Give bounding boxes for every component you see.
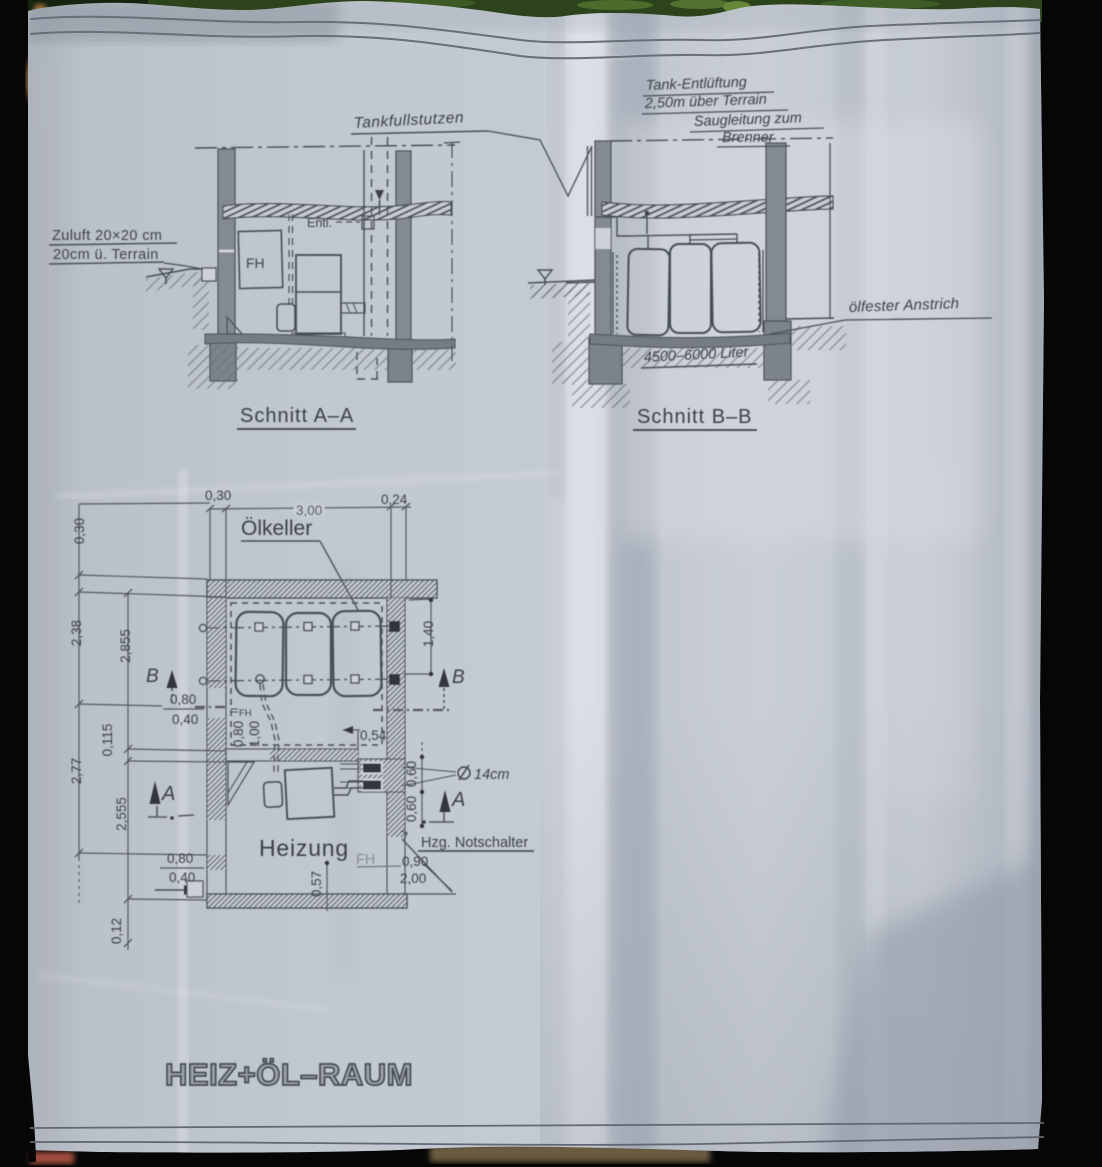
svg-text:Entl.: Entl. xyxy=(307,216,332,230)
svg-text:0,80: 0,80 xyxy=(167,851,193,866)
svg-text:Hzg. Notschalter: Hzg. Notschalter xyxy=(421,835,528,851)
svg-text:FH: FH xyxy=(239,708,252,719)
svg-text:0,54: 0,54 xyxy=(360,728,387,743)
svg-text:Ölkeller: Ölkeller xyxy=(241,517,312,540)
svg-text:FH: FH xyxy=(356,852,375,868)
svg-text:0,115: 0,115 xyxy=(100,724,115,757)
svg-text:Zuluft 20×20 cm: Zuluft 20×20 cm xyxy=(52,228,162,244)
svg-text:2,855: 2,855 xyxy=(118,629,133,663)
svg-text:Heizung: Heizung xyxy=(259,835,349,861)
svg-text:2,77: 2,77 xyxy=(69,758,84,784)
svg-text:2,555: 2,555 xyxy=(114,797,129,831)
svg-text:0,80: 0,80 xyxy=(231,721,246,747)
svg-text:1,00: 1,00 xyxy=(247,721,262,747)
svg-text:A: A xyxy=(161,783,175,805)
svg-text:0,24: 0,24 xyxy=(381,492,408,507)
svg-text:3,00: 3,00 xyxy=(296,503,322,518)
svg-text:FH: FH xyxy=(246,255,265,271)
svg-text:Brenner: Brenner xyxy=(722,130,775,146)
svg-text:B: B xyxy=(146,666,159,687)
svg-text:2,00: 2,00 xyxy=(400,871,426,886)
svg-text:0,57: 0,57 xyxy=(309,871,324,897)
svg-text:0,80: 0,80 xyxy=(170,692,196,707)
svg-text:Schnitt B–B: Schnitt B–B xyxy=(637,406,753,428)
svg-text:0,40: 0,40 xyxy=(172,712,198,727)
svg-text:B: B xyxy=(452,667,465,688)
svg-text:Schnitt A–A: Schnitt A–A xyxy=(240,405,354,427)
svg-text:0,30: 0,30 xyxy=(205,488,231,503)
svg-text:0,60: 0,60 xyxy=(404,796,419,822)
svg-text:20cm ü. Terrain: 20cm ü. Terrain xyxy=(53,247,159,263)
svg-text:2,38: 2,38 xyxy=(69,620,84,646)
svg-text:1,40: 1,40 xyxy=(421,621,436,647)
svg-text:0,40: 0,40 xyxy=(169,870,195,885)
svg-text:HEIZ+ÖL–RAUM: HEIZ+ÖL–RAUM xyxy=(165,1057,413,1092)
svg-text:0,30: 0,30 xyxy=(72,518,87,544)
svg-text:A: A xyxy=(451,789,465,811)
svg-text:0,90: 0,90 xyxy=(402,854,428,869)
svg-text:0,12: 0,12 xyxy=(109,918,124,944)
svg-text:14cm: 14cm xyxy=(474,767,509,783)
